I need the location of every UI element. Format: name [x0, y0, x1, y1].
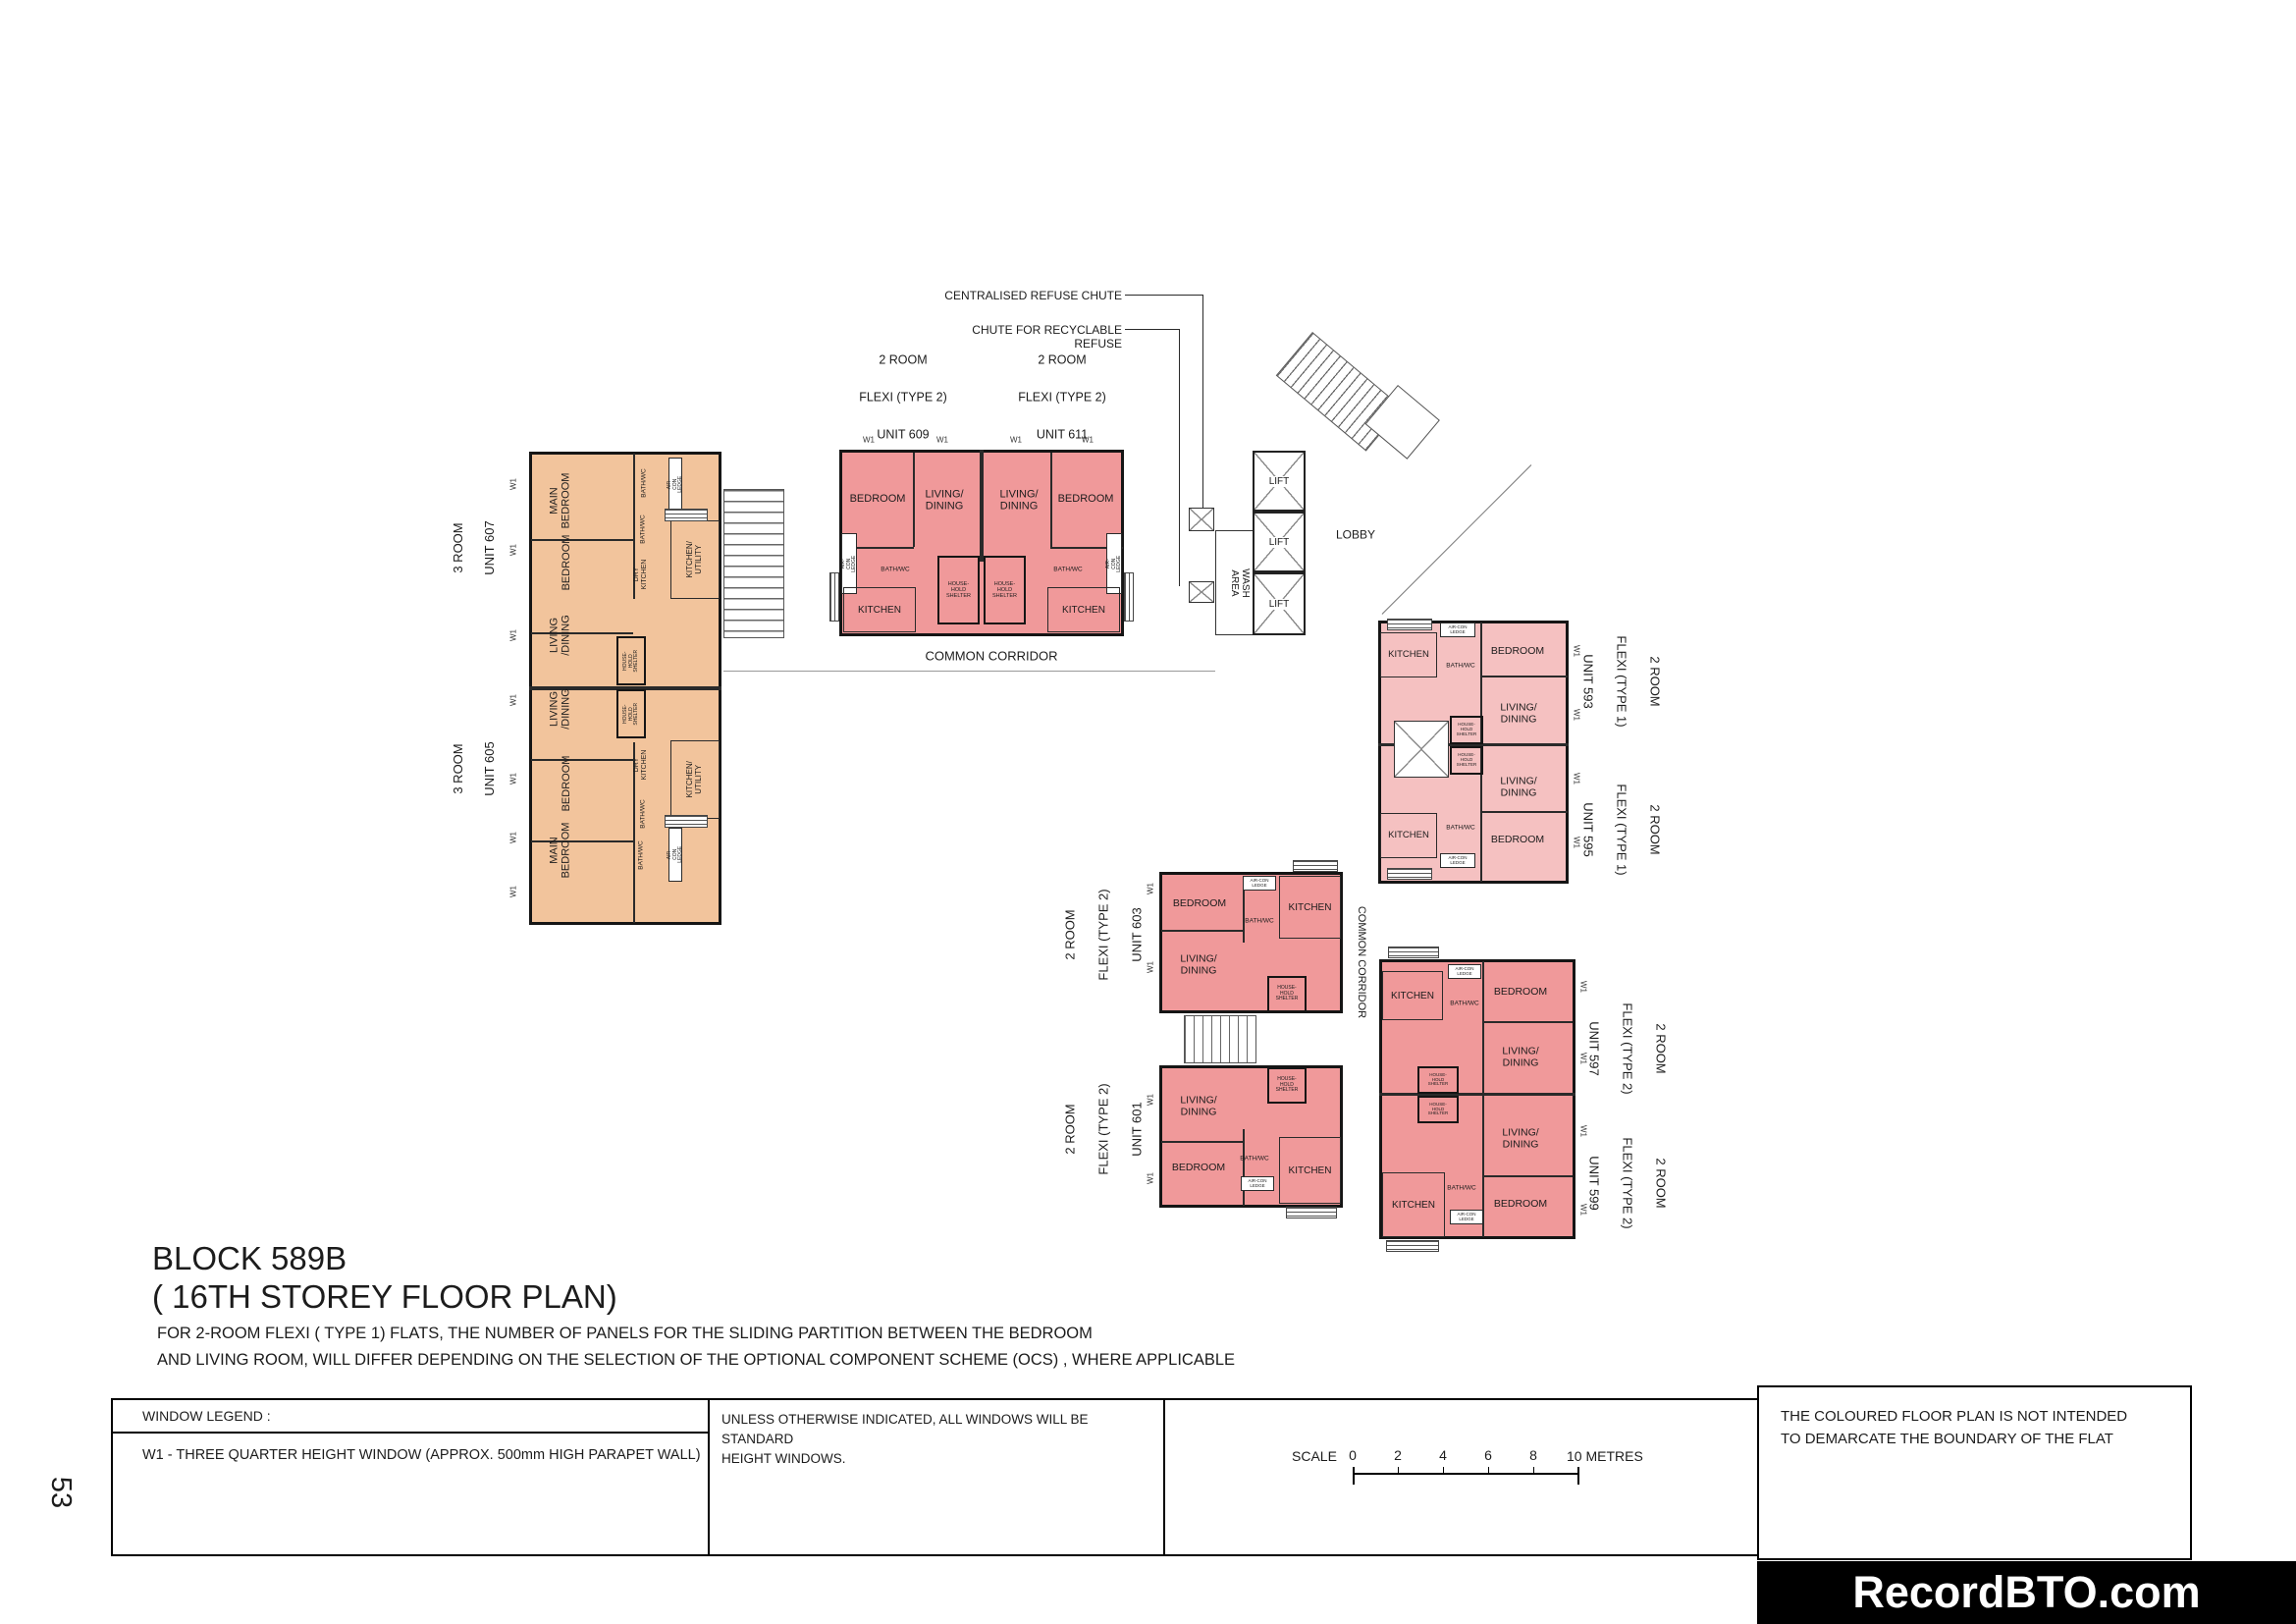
- room-label-kitchen: KITCHEN: [1289, 902, 1332, 913]
- window-ledge-symbol: [1124, 572, 1134, 622]
- room-label-main-bedroom: MAIN BEDROOM: [549, 823, 573, 879]
- room-label-dry-kitchen: DRY KITCHEN: [633, 750, 649, 781]
- window-ledge-symbol: [665, 815, 708, 828]
- room-label-bath-wc: BATH/WC: [1240, 1155, 1269, 1162]
- scale-ruler-tick: [1533, 1467, 1534, 1475]
- internal-wall: [1050, 453, 1052, 547]
- unit-label-595-line3: UNIT 595: [1580, 784, 1597, 875]
- aircon-ledge-box: AIR-CON LEDGE: [1450, 1210, 1483, 1224]
- unit-label-601-line2: FLEXI (TYPE 2): [1095, 1083, 1112, 1174]
- internal-wall: [1481, 676, 1568, 677]
- common-corridor-label: COMMON CORRIDOR: [925, 650, 1057, 665]
- unit-label-597: 2 ROOM FLEXI (TYPE 2) UNIT 597: [1570, 1002, 1686, 1094]
- unit-label-597-line3: UNIT 597: [1586, 1002, 1603, 1094]
- room-label-living-dining: LIVING/ DINING: [925, 489, 963, 514]
- windows-note-text: UNLESS OTHERWISE INDICATED, ALL WINDOWS …: [710, 1400, 1163, 1469]
- window-marker-w1: W1: [936, 437, 948, 446]
- kitchen-box: KITCHEN: [1380, 813, 1437, 858]
- scale-ruler-tick: [1488, 1467, 1489, 1475]
- window-marker-w1: W1: [510, 629, 519, 641]
- aircon-ledge-box: AIR-CON LEDGE: [668, 458, 682, 512]
- room-label-living-dining: LIVING/ DINING: [1502, 1046, 1538, 1069]
- room-label-dry-kitchen: DRY KITCHEN: [633, 560, 649, 590]
- unit-label-603-line2: FLEXI (TYPE 2): [1095, 889, 1112, 980]
- boundary-note-box: THE COLOURED FLOOR PLAN IS NOT INTENDED …: [1757, 1385, 2192, 1560]
- kitchen-utility-box: KITCHEN/ UTILITY: [670, 520, 720, 599]
- room-label-kitchen: KITCHEN: [1289, 1165, 1332, 1176]
- room-label-bedroom: BEDROOM: [561, 756, 572, 812]
- room-label-bedroom: BEDROOM: [1494, 987, 1547, 999]
- unit-label-599: 2 ROOM FLEXI (TYPE 2) UNIT 599: [1570, 1137, 1686, 1228]
- kitchen-box: KITCHEN: [1279, 1137, 1341, 1204]
- scale-tick-8: 8: [1529, 1448, 1537, 1464]
- scale-end-label: 10 METRES: [1567, 1448, 1643, 1464]
- window-ledge-symbol: [665, 509, 708, 521]
- room-label-kitchen: KITCHEN: [1391, 991, 1434, 1001]
- scale-tick-0: 0: [1349, 1448, 1357, 1464]
- common-corridor-label: COMMON CORRIDOR: [1356, 906, 1367, 1018]
- household-shelter-box: HOUSE- HOLD SHELTER: [1267, 1067, 1307, 1104]
- kitchen-box: KITCHEN: [843, 587, 916, 632]
- window-marker-w1: W1: [510, 544, 519, 556]
- room-label-household-shelter: HOUSE- HOLD SHELTER: [992, 581, 1017, 599]
- lift-shaft-1: LIFT: [1253, 451, 1306, 512]
- internal-wall: [1484, 1175, 1573, 1177]
- room-label-kitchen: KITCHEN: [1062, 605, 1105, 616]
- scale-tick-4: 4: [1439, 1448, 1447, 1464]
- household-shelter-box: HOUSE- HOLD SHELTER: [616, 636, 646, 685]
- household-shelter-box: HOUSE- HOLD SHELTER: [1450, 716, 1483, 744]
- kitchen-utility-box: KITCHEN/ UTILITY: [670, 740, 720, 819]
- aircon-ledge-box: AIR-CON LEDGE: [1241, 1176, 1274, 1191]
- room-label-bedroom: BEDROOM: [1058, 493, 1114, 505]
- room-label-living-dining: LIVING/ DINING: [1500, 776, 1536, 799]
- room-label-kitchen: KITCHEN: [1392, 1200, 1435, 1211]
- room-label-living-dining: LIVING /DINING: [549, 615, 573, 656]
- room-label-aircon-ledge: AIR-CON LEDGE: [1249, 1179, 1267, 1189]
- room-label-bath-wc: BATH/WC: [1053, 566, 1083, 572]
- aircon-ledge-box: AIR-CON LEDGE: [1440, 853, 1475, 868]
- room-label-bath-wc: BATH/WC: [639, 514, 646, 544]
- unit-label-603-line3: UNIT 603: [1129, 889, 1146, 980]
- kitchen-box: KITCHEN: [1047, 587, 1120, 632]
- room-label-aircon-ledge: AIR-CON LEDGE: [1449, 625, 1468, 635]
- window-legend-box: WINDOW LEGEND : W1 - THREE QUARTER HEIGH…: [111, 1398, 710, 1556]
- room-label-household-shelter: HOUSE- HOLD SHELTER: [1276, 1077, 1299, 1094]
- centralised-refuse-chute-box: [1189, 508, 1214, 531]
- room-label-kitchen: KITCHEN: [1388, 831, 1429, 840]
- chute-leader-line: [1179, 329, 1180, 586]
- internal-wall: [1481, 811, 1568, 813]
- title-note-line1: FOR 2-ROOM FLEXI ( TYPE 1) FLATS, THE NU…: [157, 1325, 1093, 1343]
- aircon-ledge-box: AIR-CON LEDGE: [1440, 623, 1475, 637]
- internal-wall: [1484, 1021, 1573, 1023]
- unit-label-611-line2: FLEXI (TYPE 2): [1018, 389, 1106, 407]
- chute-leader-line: [1125, 295, 1203, 296]
- staircase: [1184, 1015, 1256, 1063]
- window-marker-w1: W1: [1578, 981, 1587, 993]
- room-label-bedroom: BEDROOM: [1491, 835, 1544, 846]
- room-label-bath-wc: BATH/WC: [637, 840, 644, 870]
- unit-label-595: 2 ROOM FLEXI (TYPE 1) UNIT 595: [1564, 784, 1681, 875]
- recordbto-logo: RecordBTO.com: [1852, 1567, 2200, 1618]
- window-marker-w1: W1: [510, 478, 519, 490]
- scale-tick-6: 6: [1484, 1448, 1492, 1464]
- household-shelter-box: HOUSE- HOLD SHELTER: [1267, 976, 1307, 1012]
- internal-wall: [1482, 961, 1484, 1093]
- window-ledge-symbol: [1386, 1240, 1439, 1252]
- unit-label-609-line2: FLEXI (TYPE 2): [859, 389, 947, 407]
- household-shelter-box: HOUSE- HOLD SHELTER: [984, 556, 1026, 624]
- scale-tick-2: 2: [1394, 1448, 1402, 1464]
- chute-leader-line: [1202, 295, 1203, 508]
- room-label-bedroom: BEDROOM: [1491, 646, 1544, 658]
- lobby-label: LOBBY: [1336, 528, 1375, 541]
- room-label-bedroom: BEDROOM: [1173, 898, 1226, 910]
- room-label-household-shelter: HOUSE- HOLD SHELTER: [623, 650, 640, 673]
- room-label-household-shelter: HOUSE- HOLD SHELTER: [1457, 723, 1476, 737]
- aircon-ledge-box: AIR-CON LEDGE: [668, 828, 682, 882]
- window-marker-w1: W1: [510, 832, 519, 843]
- window-marker-w1: W1: [1572, 773, 1580, 785]
- room-label-household-shelter: HOUSE- HOLD SHELTER: [946, 581, 971, 599]
- room-label-aircon-ledge: AIR-CON LEDGE: [841, 556, 858, 572]
- scale-ruler-tick: [1577, 1467, 1579, 1485]
- unit-party-wall: [1379, 1093, 1575, 1096]
- window-ledge-symbol: [1286, 1207, 1337, 1218]
- unit-party-wall: [980, 450, 984, 562]
- lift-shaft-4: [1394, 721, 1449, 778]
- unit-label-609-line1: 2 ROOM: [859, 352, 947, 370]
- scale-ruler-line: [1353, 1473, 1578, 1475]
- internal-wall: [1161, 930, 1243, 932]
- unit-label-601: 2 ROOM FLEXI (TYPE 2) UNIT 601: [1045, 1083, 1162, 1174]
- kitchen-box: KITCHEN: [1382, 971, 1443, 1020]
- window-ledge-symbol: [829, 572, 839, 622]
- lift-shaft-2: LIFT: [1253, 512, 1306, 572]
- boundary-note-text: THE COLOURED FLOOR PLAN IS NOT INTENDED …: [1759, 1387, 2190, 1450]
- aircon-ledge-box: AIR-CON LEDGE: [1243, 876, 1276, 891]
- recyclable-refuse-chute-box: [1189, 581, 1214, 603]
- room-label-household-shelter: HOUSE- HOLD SHELTER: [1457, 753, 1476, 768]
- room-label-bedroom: BEDROOM: [1494, 1199, 1547, 1211]
- room-label-living-dining: LIVING/ DINING: [1500, 702, 1536, 726]
- room-label-bath-wc: BATH/WC: [1245, 917, 1274, 924]
- unit-label-607: 3 ROOM UNIT 607: [435, 520, 513, 574]
- room-label-bedroom: BEDROOM: [850, 493, 906, 505]
- internal-wall: [1243, 1129, 1245, 1206]
- unit-label-593: 2 ROOM FLEXI (TYPE 1) UNIT 593: [1564, 635, 1681, 727]
- staircase: [723, 489, 784, 638]
- window-marker-w1: W1: [510, 886, 519, 897]
- room-label-living-dining: LIVING/ DINING: [1180, 953, 1216, 977]
- unit-label-603-line1: 2 ROOM: [1062, 889, 1079, 980]
- window-legend-w1-description: W1 - THREE QUARTER HEIGHT WINDOW (APPROX…: [113, 1434, 708, 1463]
- room-label-household-shelter: HOUSE- HOLD SHELTER: [1428, 1073, 1448, 1088]
- unit-label-599-line3: UNIT 599: [1586, 1137, 1603, 1228]
- room-label-household-shelter: HOUSE- HOLD SHELTER: [1428, 1103, 1448, 1117]
- room-label-bedroom: BEDROOM: [1172, 1163, 1225, 1174]
- scale-label: SCALE: [1292, 1448, 1337, 1464]
- household-shelter-box: HOUSE- HOLD SHELTER: [616, 689, 646, 738]
- window-ledge-symbol: [1387, 619, 1432, 630]
- room-label-living-dining: LIVING/ DINING: [1502, 1127, 1538, 1151]
- unit-label-599-line2: FLEXI (TYPE 2): [1620, 1137, 1636, 1228]
- lobby-boundary-line: [1382, 464, 1532, 615]
- page-number: 53: [45, 1477, 77, 1508]
- window-ledge-symbol: [1293, 860, 1338, 872]
- room-label-living-dining: LIVING /DINING: [549, 688, 573, 730]
- scale-ruler-tick: [1398, 1467, 1399, 1475]
- logo-bar: RecordBTO.com: [1757, 1561, 2296, 1624]
- window-marker-w1: W1: [1082, 437, 1094, 446]
- window-marker-w1: W1: [510, 773, 519, 785]
- room-label-household-shelter: HOUSE- HOLD SHELTER: [1276, 986, 1299, 1002]
- internal-wall: [531, 759, 633, 761]
- unit-label-593-line1: 2 ROOM: [1647, 635, 1664, 727]
- kitchen-box: KITCHEN: [1382, 1172, 1445, 1237]
- room-label-aircon-ledge: AIR-CON LEDGE: [667, 846, 684, 863]
- room-label-main-bedroom: MAIN BEDROOM: [549, 473, 573, 529]
- aircon-ledge-box: AIR-CON LEDGE: [1106, 533, 1122, 594]
- kitchen-box: KITCHEN: [1279, 876, 1341, 939]
- household-shelter-box: HOUSE- HOLD SHELTER: [937, 556, 980, 624]
- window-marker-w1: W1: [510, 694, 519, 706]
- unit-label-607-line1: 3 ROOM: [451, 520, 466, 574]
- room-label-aircon-ledge: AIR-CON LEDGE: [1456, 967, 1474, 977]
- unit-label-593-line2: FLEXI (TYPE 1): [1614, 635, 1630, 727]
- room-label-bath-wc: BATH/WC: [1446, 662, 1475, 669]
- lift-label: LIFT: [1266, 537, 1293, 548]
- room-label-aircon-ledge: AIR-CON LEDGE: [1449, 856, 1468, 866]
- unit-label-605-line1: 3 ROOM: [451, 741, 466, 795]
- unit-label-593-line3: UNIT 593: [1580, 635, 1597, 727]
- window-legend-title: WINDOW LEGEND :: [113, 1400, 708, 1434]
- internal-wall: [531, 632, 633, 634]
- wash-area-label: WASH AREA: [1229, 560, 1251, 607]
- corridor-outline: [723, 671, 1215, 672]
- scale-ruler-tick: [1353, 1467, 1355, 1485]
- room-label-aircon-ledge: AIR-CON LEDGE: [1458, 1213, 1476, 1222]
- window-ledge-symbol: [1387, 868, 1432, 880]
- internal-wall: [913, 453, 915, 547]
- unit-label-599-line1: 2 ROOM: [1653, 1137, 1670, 1228]
- unit-label-601-line1: 2 ROOM: [1062, 1083, 1079, 1174]
- room-label-bath-wc: BATH/WC: [1446, 824, 1475, 831]
- aircon-ledge-box: AIR-CON LEDGE: [841, 533, 857, 594]
- room-label-bath-wc: BATH/WC: [1450, 1000, 1479, 1006]
- unit-label-595-line2: FLEXI (TYPE 1): [1614, 784, 1630, 875]
- windows-note-box: UNLESS OTHERWISE INDICATED, ALL WINDOWS …: [708, 1398, 1165, 1556]
- scale-box: [1163, 1398, 1759, 1556]
- room-label-aircon-ledge: AIR-CON LEDGE: [1106, 556, 1123, 572]
- room-label-living-dining: LIVING/ DINING: [999, 489, 1038, 514]
- unit-label-595-line1: 2 ROOM: [1647, 784, 1664, 875]
- lift-label: LIFT: [1266, 599, 1293, 610]
- household-shelter-box: HOUSE- HOLD SHELTER: [1417, 1066, 1459, 1094]
- unit-label-605: 3 ROOM UNIT 605: [435, 741, 513, 795]
- kitchen-box: KITCHEN: [1380, 632, 1437, 677]
- room-label-bedroom: BEDROOM: [561, 535, 572, 591]
- room-label-bath-wc: BATH/WC: [640, 468, 647, 498]
- lift-shaft-3: LIFT: [1253, 572, 1306, 635]
- household-shelter-box: HOUSE- HOLD SHELTER: [1417, 1096, 1459, 1123]
- unit-label-607-line2: UNIT 607: [482, 520, 498, 574]
- window-marker-w1: W1: [1578, 1125, 1587, 1137]
- aircon-ledge-box: AIR-CON LEDGE: [1448, 964, 1481, 979]
- window-marker-w1: W1: [1010, 437, 1022, 446]
- room-label-kitchen-utility: KITCHEN/ UTILITY: [686, 541, 704, 577]
- room-label-household-shelter: HOUSE- HOLD SHELTER: [623, 703, 640, 726]
- unit-label-601-line3: UNIT 601: [1129, 1083, 1146, 1174]
- room-label-aircon-ledge: AIR-CON LEDGE: [1251, 879, 1269, 889]
- unit-label-597-line2: FLEXI (TYPE 2): [1620, 1002, 1636, 1094]
- room-label-bath-wc: BATH/WC: [639, 799, 646, 829]
- title-note-line2: AND LIVING ROOM, WILL DIFFER DEPENDING O…: [157, 1351, 1235, 1370]
- room-label-kitchen: KITCHEN: [858, 605, 901, 616]
- scale-ruler-tick: [1443, 1467, 1444, 1475]
- internal-wall: [1161, 1141, 1243, 1143]
- room-label-living-dining: LIVING/ DINING: [1180, 1095, 1216, 1118]
- unit-label-611-line1: 2 ROOM: [1018, 352, 1106, 370]
- room-label-bath-wc: BATH/WC: [881, 566, 910, 572]
- room-label-bath-wc: BATH/WC: [1447, 1184, 1476, 1191]
- centralised-refuse-chute-label: CENTRALISED REFUSE CHUTE: [926, 289, 1122, 302]
- unit-label-603: 2 ROOM FLEXI (TYPE 2) UNIT 603: [1045, 889, 1162, 980]
- page-title-block: BLOCK 589B: [152, 1239, 347, 1277]
- lift-label: LIFT: [1266, 476, 1293, 487]
- room-label-kitchen-utility: KITCHEN/ UTILITY: [686, 761, 704, 797]
- page-title-storey: ( 16TH STOREY FLOOR PLAN): [152, 1277, 617, 1316]
- window-ledge-symbol: [1388, 947, 1439, 958]
- internal-wall: [531, 539, 633, 541]
- unit-label-605-line2: UNIT 605: [482, 741, 498, 795]
- internal-wall: [531, 840, 633, 842]
- room-label-kitchen: KITCHEN: [1388, 650, 1429, 660]
- window-marker-w1: W1: [863, 437, 875, 446]
- unit-label-597-line1: 2 ROOM: [1653, 1002, 1670, 1094]
- chute-leader-line: [1125, 329, 1180, 330]
- room-label-aircon-ledge: AIR-CON LEDGE: [667, 476, 684, 493]
- household-shelter-box: HOUSE- HOLD SHELTER: [1450, 746, 1483, 775]
